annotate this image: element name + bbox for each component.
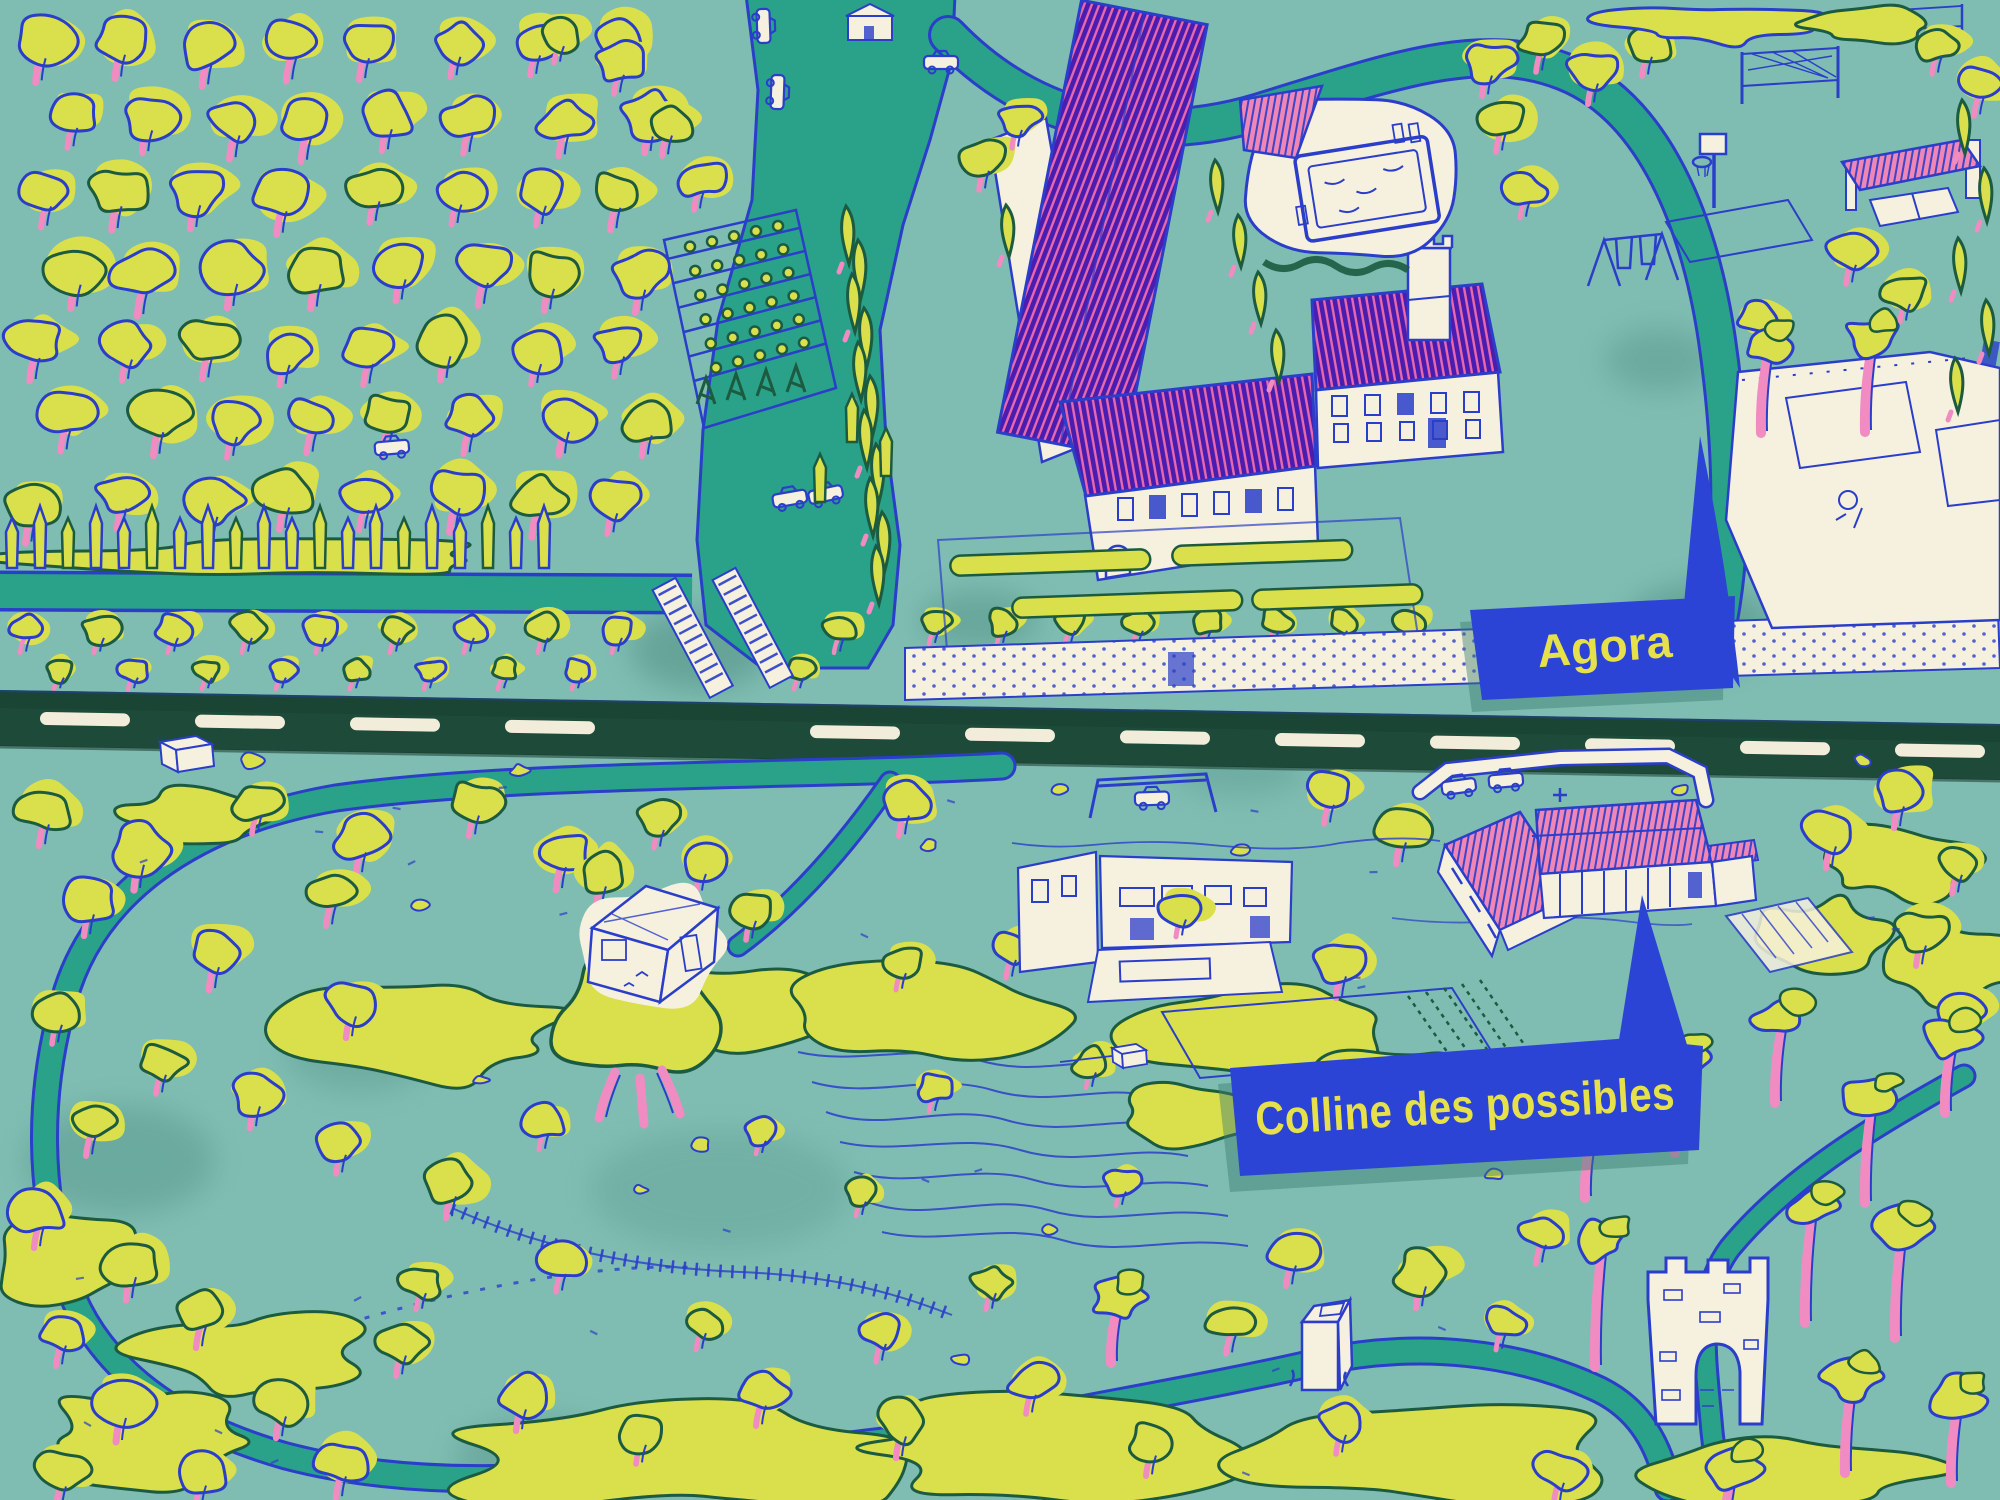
cypress-icon	[230, 518, 242, 568]
cypress-icon	[174, 518, 186, 568]
cypress-icon	[454, 518, 466, 568]
crate-icon	[160, 736, 214, 772]
map-art	[0, 0, 2000, 1500]
cypress-icon	[118, 518, 130, 568]
cypress-icon	[6, 518, 18, 568]
cypress-icon	[286, 518, 298, 568]
road-dash	[965, 728, 1055, 743]
road-dash	[1895, 743, 1985, 758]
road-dash	[1740, 741, 1830, 756]
road-dash	[1275, 733, 1365, 748]
grass-tuft-icon	[1052, 784, 1069, 795]
cypress-icon	[258, 506, 270, 568]
canal	[0, 591, 692, 594]
cypress-icon	[34, 506, 46, 568]
road-dash	[505, 720, 595, 735]
road-dash	[40, 712, 130, 727]
cypress-icon	[314, 506, 326, 568]
cypress-icon	[846, 394, 858, 442]
cypress-icon	[482, 506, 494, 568]
cypress-icon	[426, 506, 438, 568]
cypress-icon	[62, 518, 74, 568]
map-canvas: Agora Colline des possibles	[0, 0, 2000, 1500]
grass-tuft-icon	[1042, 1224, 1057, 1235]
cypress-icon	[146, 506, 158, 568]
road-dash	[195, 715, 285, 730]
cypress-icon	[342, 518, 354, 568]
road-dash	[810, 725, 900, 740]
label-agora: Agora	[1535, 615, 1674, 677]
grass-tuft-icon	[411, 900, 430, 911]
cypress-icon	[510, 518, 522, 568]
map-illustration: Agora Colline des possibles	[0, 0, 2000, 1500]
cypress-icon	[880, 428, 892, 476]
cypress-icon	[370, 506, 382, 568]
cypress-icon	[814, 454, 826, 502]
cypress-icon	[538, 506, 550, 568]
grass-tuft-icon	[691, 1137, 708, 1151]
road-dash	[350, 717, 440, 732]
cypress-icon	[398, 518, 410, 568]
road-dash	[1430, 736, 1520, 751]
road-dash	[1120, 730, 1210, 745]
cypress-icon	[202, 506, 214, 568]
cypress-icon	[90, 506, 102, 568]
